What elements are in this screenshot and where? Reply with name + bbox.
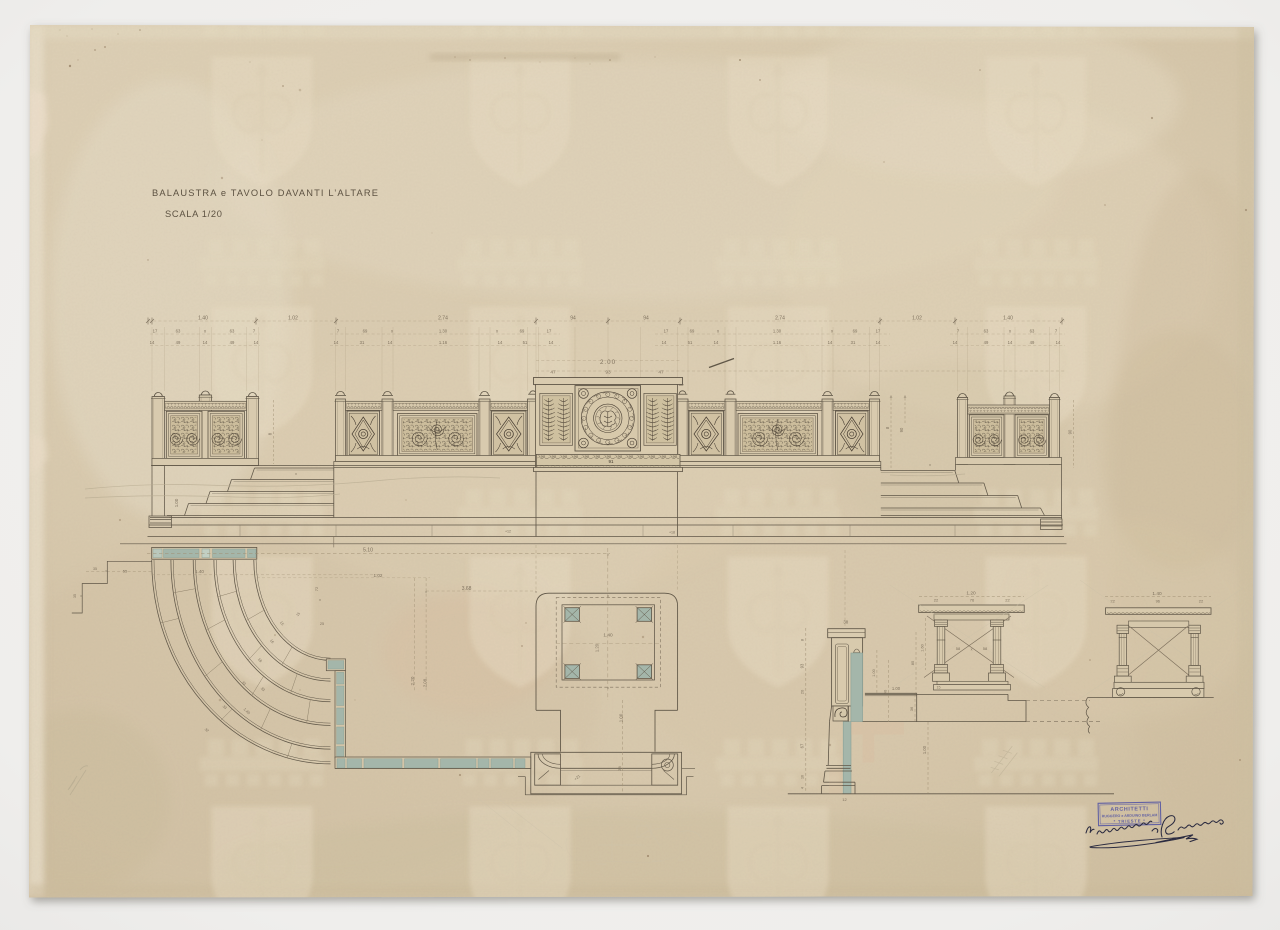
svg-text:58: 58 [956, 646, 961, 651]
svg-text:1.40: 1.40 [198, 316, 208, 322]
svg-text:47: 47 [550, 370, 556, 376]
svg-text:22: 22 [1005, 598, 1010, 603]
svg-text:69: 69 [853, 329, 858, 334]
svg-text:1.40: 1.40 [1003, 316, 1013, 322]
svg-text:5.10: 5.10 [363, 548, 373, 554]
svg-text:49: 49 [1030, 340, 1035, 345]
svg-text:12: 12 [842, 797, 847, 802]
svg-text:BALAUSTRA e TAVOLO DAVANTI L’A: BALAUSTRA e TAVOLO DAVANTI L’ALTARE [152, 188, 379, 198]
svg-text:14: 14 [953, 340, 958, 345]
svg-text:x: x [607, 553, 609, 557]
svg-text:1.02: 1.02 [374, 573, 383, 578]
svg-text:14: 14 [498, 340, 503, 345]
svg-text:91: 91 [608, 459, 614, 464]
svg-text:1.40: 1.40 [195, 569, 204, 574]
svg-text:17: 17 [153, 329, 158, 334]
svg-text:63: 63 [176, 329, 181, 334]
svg-text:67: 67 [800, 743, 805, 748]
svg-text:x: x [295, 472, 297, 476]
svg-text:69: 69 [363, 329, 368, 334]
svg-text:25: 25 [320, 622, 324, 626]
svg-text:94: 94 [570, 316, 576, 322]
svg-text:1.00: 1.00 [174, 498, 179, 507]
svg-text:49: 49 [984, 340, 989, 345]
svg-text:x: x [607, 594, 609, 598]
svg-text:2.74: 2.74 [775, 316, 785, 322]
svg-text:1.40: 1.40 [1152, 591, 1162, 597]
svg-text:A: A [904, 395, 907, 399]
svg-text:x: x [929, 463, 931, 467]
svg-text:1.02: 1.02 [288, 316, 298, 322]
svg-text:SCALA 1/20: SCALA 1/20 [165, 209, 223, 219]
svg-text:90: 90 [899, 427, 904, 432]
svg-text:14: 14 [876, 340, 881, 345]
svg-text:72: 72 [314, 586, 319, 591]
svg-text:94: 94 [643, 316, 649, 322]
svg-text:ARCHITETTI: ARCHITETTI [1110, 806, 1148, 813]
svg-text:20: 20 [800, 689, 805, 694]
svg-text:85: 85 [910, 660, 915, 665]
svg-text:14: 14 [714, 340, 719, 345]
svg-text:x: x [607, 686, 609, 690]
svg-text:14: 14 [334, 340, 339, 345]
svg-text:1.40: 1.40 [603, 633, 613, 639]
svg-text:90: 90 [1068, 429, 1073, 434]
svg-text:22: 22 [1199, 598, 1204, 603]
svg-text:14: 14 [549, 340, 554, 345]
svg-text:49: 49 [176, 340, 181, 345]
svg-text:16: 16 [801, 775, 805, 779]
svg-text:14: 14 [1056, 340, 1061, 345]
svg-text:17: 17 [664, 329, 669, 334]
svg-text:A: A [890, 395, 893, 399]
svg-text:14: 14 [150, 340, 155, 345]
svg-text:14: 14 [388, 340, 393, 345]
svg-text:36: 36 [909, 706, 914, 711]
svg-text:1.02: 1.02 [912, 316, 922, 322]
svg-text:38: 38 [617, 766, 622, 771]
svg-text:x: x [971, 648, 973, 652]
svg-text:1.30: 1.30 [773, 329, 782, 334]
svg-text:63: 63 [230, 329, 235, 334]
svg-text:35: 35 [93, 567, 97, 571]
svg-text:49: 49 [230, 340, 235, 345]
svg-text:51: 51 [523, 340, 528, 345]
svg-text:93: 93 [800, 663, 805, 668]
svg-text:31: 31 [851, 340, 856, 345]
svg-text:1.16: 1.16 [773, 340, 782, 345]
svg-text:58: 58 [983, 646, 988, 651]
svg-text:96: 96 [1156, 598, 1161, 603]
svg-text:1.20: 1.20 [966, 591, 976, 597]
svg-text:17: 17 [547, 329, 552, 334]
svg-text:38: 38 [843, 620, 848, 625]
svg-text:1.30: 1.30 [439, 329, 448, 334]
svg-text:14: 14 [254, 340, 259, 345]
svg-text:14: 14 [828, 340, 833, 345]
svg-text:17: 17 [876, 329, 881, 334]
svg-text:55: 55 [123, 569, 128, 574]
svg-text:22: 22 [934, 598, 939, 603]
svg-text:51: 51 [688, 340, 693, 345]
svg-text:35: 35 [73, 594, 77, 598]
svg-text:4: 4 [801, 787, 805, 789]
svg-text:14: 14 [203, 340, 208, 345]
svg-text:14: 14 [1008, 340, 1013, 345]
svg-text:63: 63 [984, 329, 989, 334]
svg-text:1.20: 1.20 [595, 643, 600, 652]
svg-text:76: 76 [970, 598, 975, 603]
svg-text:15: 15 [937, 686, 941, 690]
svg-text:1.60: 1.60 [921, 644, 925, 651]
svg-text:69: 69 [520, 329, 525, 334]
svg-text:x: x [319, 598, 321, 602]
svg-text:69: 69 [690, 329, 695, 334]
svg-text:31: 31 [360, 340, 365, 345]
svg-text:2.20: 2.20 [410, 676, 415, 685]
svg-text:47: 47 [658, 370, 664, 376]
svg-text:3.68: 3.68 [462, 586, 472, 592]
svg-text:1.00: 1.00 [922, 745, 927, 754]
svg-text:2.08: 2.08 [423, 678, 428, 687]
svg-text:+12: +12 [505, 530, 511, 534]
svg-text:+18: +18 [669, 531, 675, 535]
svg-text:2.74: 2.74 [438, 316, 448, 322]
svg-text:1.00: 1.00 [872, 669, 876, 676]
svg-text:14: 14 [662, 340, 667, 345]
svg-text:63: 63 [1030, 329, 1035, 334]
svg-text:* TRIESTE *: * TRIESTE * [1114, 818, 1146, 824]
svg-text:1.16: 1.16 [439, 340, 448, 345]
svg-text:90: 90 [883, 689, 888, 694]
